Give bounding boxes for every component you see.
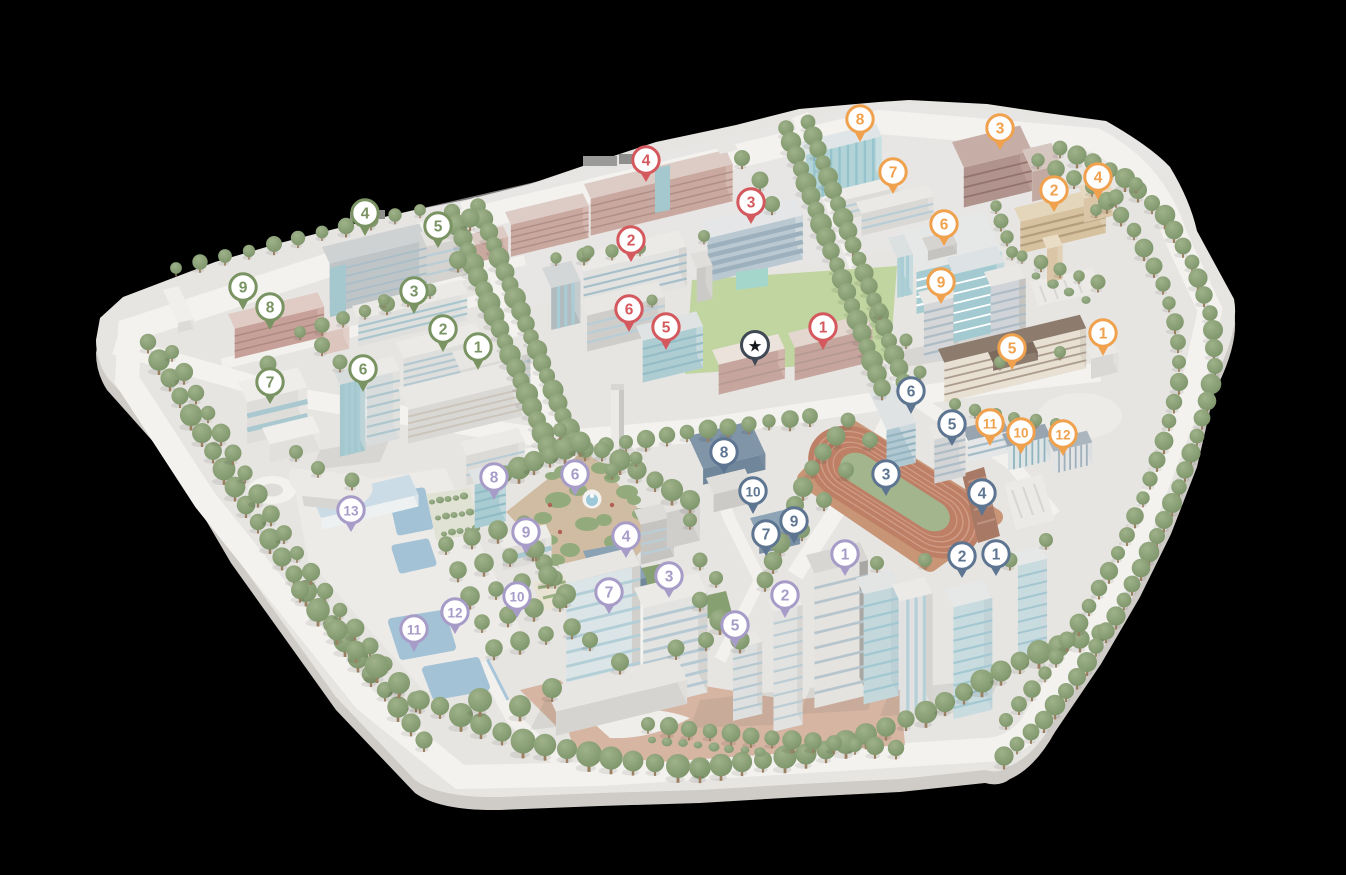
svg-text:9: 9: [790, 513, 799, 530]
svg-text:1: 1: [819, 319, 828, 336]
svg-text:9: 9: [937, 274, 946, 291]
svg-text:5: 5: [1008, 340, 1017, 357]
svg-text:4: 4: [622, 528, 631, 545]
svg-text:3: 3: [996, 120, 1005, 137]
svg-text:3: 3: [410, 283, 419, 300]
svg-text:8: 8: [266, 299, 275, 316]
svg-text:8: 8: [720, 444, 729, 461]
svg-text:6: 6: [907, 383, 916, 400]
svg-text:4: 4: [361, 205, 370, 222]
svg-text:4: 4: [1094, 169, 1103, 186]
svg-text:★: ★: [748, 338, 763, 356]
svg-text:10: 10: [745, 484, 760, 499]
svg-text:9: 9: [239, 279, 248, 296]
svg-text:5: 5: [662, 319, 671, 336]
svg-text:5: 5: [948, 416, 957, 433]
svg-text:6: 6: [359, 361, 368, 378]
svg-text:4: 4: [978, 485, 987, 502]
svg-text:10: 10: [1013, 425, 1028, 440]
svg-text:3: 3: [747, 194, 756, 211]
svg-text:2: 2: [1050, 182, 1059, 199]
svg-text:1: 1: [474, 339, 483, 356]
svg-text:11: 11: [407, 622, 422, 637]
svg-text:2: 2: [627, 232, 636, 249]
svg-text:2: 2: [958, 548, 967, 565]
svg-text:8: 8: [856, 111, 865, 128]
svg-text:6: 6: [571, 466, 580, 483]
svg-text:1: 1: [1099, 325, 1108, 342]
svg-text:9: 9: [522, 524, 531, 541]
svg-text:3: 3: [882, 466, 891, 483]
svg-text:7: 7: [605, 584, 614, 601]
svg-text:7: 7: [762, 526, 771, 543]
svg-text:4: 4: [642, 152, 651, 169]
svg-text:10: 10: [509, 589, 524, 604]
svg-text:12: 12: [1055, 427, 1070, 442]
svg-text:6: 6: [940, 216, 949, 233]
svg-text:2: 2: [781, 587, 790, 604]
svg-text:7: 7: [266, 374, 275, 391]
svg-text:1: 1: [841, 546, 850, 563]
svg-text:3: 3: [665, 568, 674, 585]
svg-text:7: 7: [889, 164, 898, 181]
svg-text:5: 5: [434, 218, 443, 235]
svg-text:2: 2: [439, 321, 448, 338]
svg-text:6: 6: [625, 301, 634, 318]
svg-text:1: 1: [992, 546, 1001, 563]
svg-text:12: 12: [447, 605, 462, 620]
svg-text:13: 13: [343, 503, 359, 518]
svg-text:5: 5: [731, 617, 740, 634]
svg-text:8: 8: [490, 469, 499, 486]
svg-text:11: 11: [983, 416, 998, 431]
